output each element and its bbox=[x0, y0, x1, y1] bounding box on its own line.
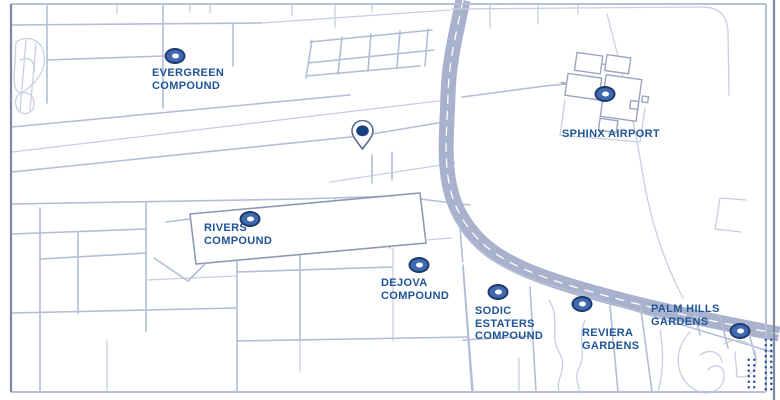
map-canvas[interactable]: EVERGREEN COMPOUND SPHINX AIRPORT RIVERS… bbox=[0, 0, 780, 400]
sodic-estaters-compound-label: SODIC ESTATERS COMPOUND bbox=[475, 305, 543, 343]
dotted-pattern bbox=[763, 337, 775, 393]
rivers-compound-marker-icon[interactable] bbox=[240, 211, 261, 227]
dejova-compound-label: DEJOVA COMPOUND bbox=[381, 277, 449, 302]
reviera-gardens-label: REVIERA GARDENS bbox=[582, 327, 639, 352]
rivers-compound-label: RIVERS COMPOUND bbox=[204, 222, 272, 247]
palm-hills-gardens-marker-icon[interactable] bbox=[730, 323, 751, 339]
sphinx-airport-label: SPHINX AIRPORT bbox=[562, 128, 660, 141]
palm-hills-gardens-label: PALM HILLS GARDENS bbox=[651, 303, 720, 328]
sphinx-airport-marker-icon[interactable] bbox=[595, 86, 616, 102]
evergreen-compound-label: EVERGREEN COMPOUND bbox=[152, 67, 224, 92]
dejova-compound-marker-icon[interactable] bbox=[409, 257, 430, 273]
reviera-gardens-marker-icon[interactable] bbox=[572, 296, 593, 312]
evergreen-compound-marker-icon[interactable] bbox=[165, 48, 186, 64]
road-network-svg bbox=[0, 0, 780, 400]
sodic-estaters-compound-marker-icon[interactable] bbox=[488, 284, 509, 300]
selected-pin-icon[interactable] bbox=[351, 120, 374, 150]
dotted-pattern bbox=[746, 357, 756, 391]
